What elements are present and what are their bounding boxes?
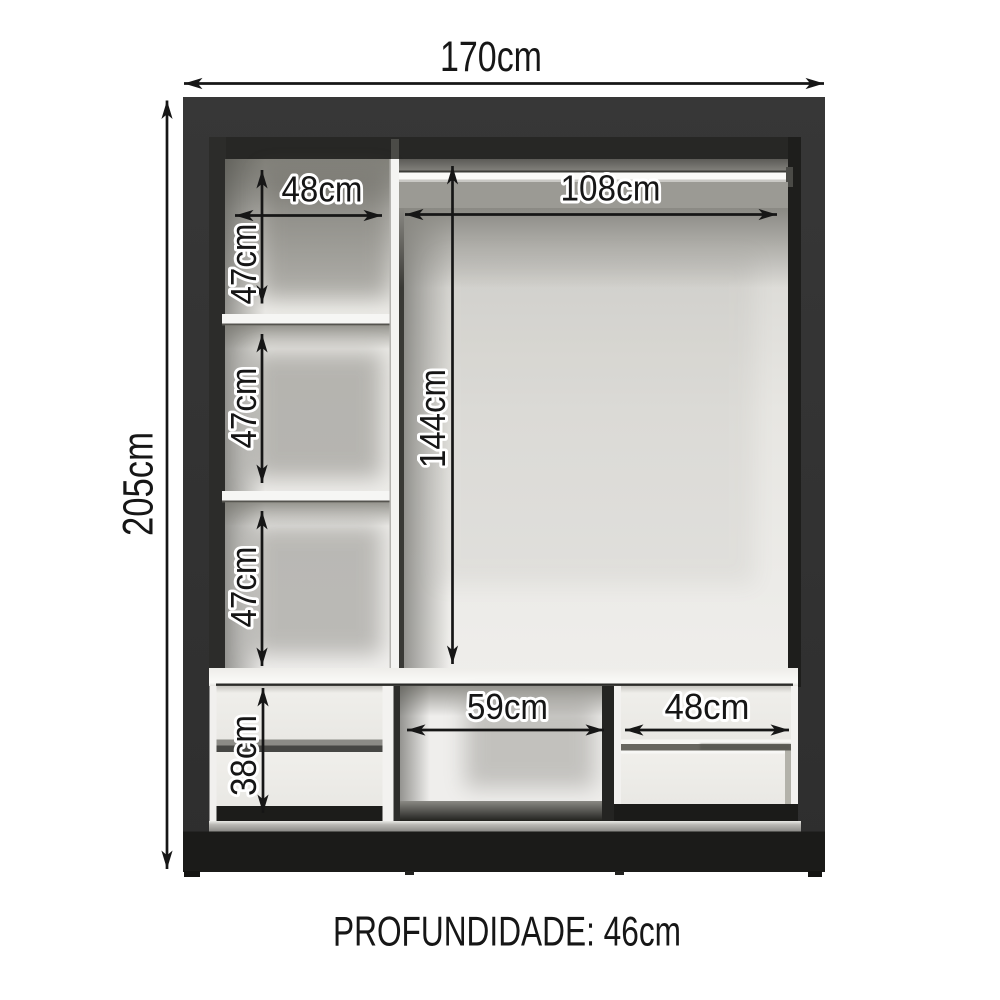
svg-text:47cm: 47cm [223,547,264,628]
svg-text:48cm: 48cm [282,169,363,210]
svg-text:PROFUNDIDADE: 46cm: PROFUNDIDADE: 46cm [333,908,681,955]
svg-text:205cm: 205cm [115,432,163,536]
svg-text:48cm: 48cm [665,686,750,727]
svg-text:170cm: 170cm [440,33,542,81]
svg-text:59cm: 59cm [467,686,548,727]
svg-text:38cm: 38cm [223,715,264,796]
svg-text:47cm: 47cm [223,224,264,305]
svg-text:108cm: 108cm [561,168,661,209]
svg-text:144cm: 144cm [412,369,453,468]
svg-text:47cm: 47cm [223,368,264,449]
